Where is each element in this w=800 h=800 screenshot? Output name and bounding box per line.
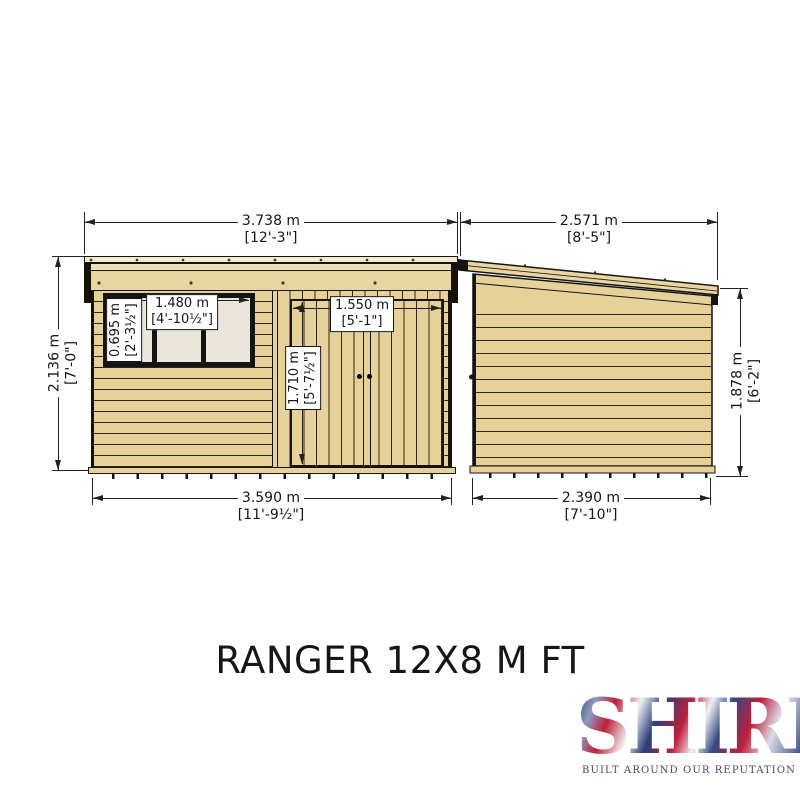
dim-metric: 3.738 m [238,213,304,229]
dim-metric: 2.390 m [558,490,624,506]
arrowhead [441,495,451,501]
dim-imperial: [5'-7½"] [303,351,319,405]
dim-metric: 1.550 m [335,298,389,314]
dim-imperial: [12'-3"] [171,230,371,247]
dim-imperial: [2'-3½"] [124,303,140,357]
dim-metric: 3.590 m [238,490,304,506]
front-corner-trim-left [91,291,94,467]
shire-logo-text: SHIRE [576,692,800,762]
product-title: RANGER 12X8 M FT [0,639,800,682]
arrowhead [299,302,305,312]
front-corner-trim-right [448,291,452,467]
front-fascia-board [84,263,458,291]
dimension-text: 2.390 m [7'-10"] [491,490,691,523]
front-floor-bearers [90,474,454,479]
roof-nail-dot [664,278,666,280]
extension-line [720,288,748,289]
extension-line [710,478,711,505]
dim-imperial: [6'-2"] [746,352,763,410]
front-floor-base [88,467,456,474]
dim-metric: 1.480 m [151,296,213,312]
dim-imperial: [7'-10"] [491,507,691,524]
arrowhead [55,460,61,470]
shire-logo: SHIRE BUILT AROUND OUR REPUTATION [576,692,800,776]
dimension-text: 1.878 m [6'-2"] [727,347,764,415]
door-height-label: 1.710 m [5'-7½"] [285,346,321,410]
roof-nail-dot [594,271,596,273]
arrowhead [700,495,710,501]
window-height-label: 0.695 m [2'-3½"] [106,298,142,362]
dimension-text: 3.590 m [11'-9½"] [171,490,371,523]
arrowhead [447,219,457,225]
front-roof-deck-edge [84,256,458,263]
door-handle-left [357,374,362,379]
extension-line [52,470,88,471]
side-roof-tip-cap [458,259,468,272]
dim-imperial: [5'-1"] [335,314,389,330]
side-elevation [455,250,755,490]
dim-metric: 1.878 m [729,352,746,410]
arrowhead [431,305,441,311]
arrowhead [55,257,61,267]
extension-line [717,212,718,280]
front-roof-end-cap-left [84,263,91,303]
dim-metric: 2.136 m [46,334,63,392]
extension-line [451,478,452,505]
door-width-label: 1.550 m [5'-1"] [330,296,394,332]
arrowhead [299,454,305,464]
arrowhead [85,219,95,225]
arrowhead [473,495,483,501]
dim-imperial: [8'-5"] [489,230,689,247]
extension-line [716,476,748,477]
roof-nail-dot [524,264,526,266]
arrowhead [737,289,743,299]
side-floor-bearers [471,473,714,478]
dimension-text: 2.136 m [7'-0"] [44,329,81,397]
arrowhead [239,297,249,303]
dim-metric: 2.571 m [556,213,622,229]
door-handle-right [367,374,372,379]
dim-metric: 1.710 m [287,351,303,405]
shire-logo-tagline: BUILT AROUND OUR REPUTATION [576,765,800,776]
arrowhead [461,219,471,225]
side-hinge-dot [469,375,474,380]
arrowhead [707,219,717,225]
dimension-text: 2.571 m [8'-5"] [489,213,689,246]
window-width-label: 1.480 m [4'-10½"] [146,294,218,330]
dim-imperial: [4'-10½"] [151,312,213,328]
dimension-text: 3.738 m [12'-3"] [171,213,371,246]
side-floor-base [470,466,715,473]
side-wall-cladding [475,306,712,465]
arrowhead [737,466,743,476]
side-roof-end-cap-right [711,294,718,305]
dim-metric: 0.695 m [108,303,124,357]
shed-technical-drawing: 3.738 m [12'-3"] 2.571 m [8'-5"] 2.136 m… [0,0,800,800]
dim-imperial: [11'-9½"] [171,507,371,524]
dim-imperial: [7'-0"] [63,334,80,392]
side-corner-trim-left [473,274,476,466]
arrowhead [93,495,103,501]
extension-line [457,212,458,254]
